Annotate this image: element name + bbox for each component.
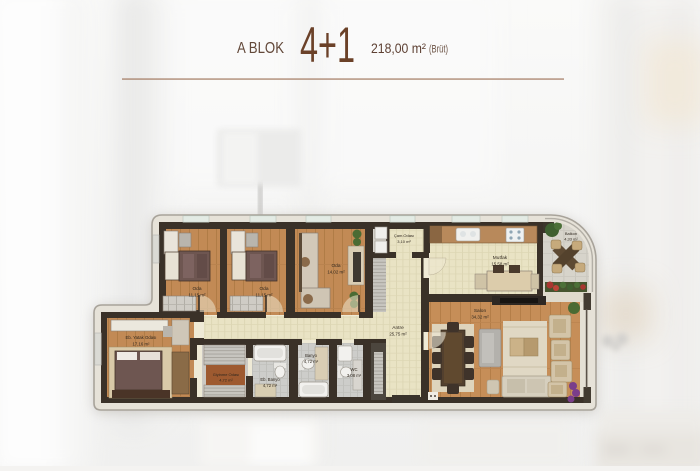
svg-text:4,72 m²: 4,72 m²	[304, 359, 319, 364]
svg-text:Antre: Antre	[392, 325, 404, 331]
svg-text:15,58 m²: 15,58 m²	[491, 262, 509, 267]
svg-text:Salon: Salon	[474, 308, 487, 314]
svg-text:Mutfak: Mutfak	[493, 255, 508, 261]
svg-text:17,16 m²: 17,16 m²	[133, 342, 151, 347]
svg-text:11,15 m²: 11,15 m²	[255, 293, 273, 298]
svg-text:Balkon: Balkon	[565, 231, 577, 236]
svg-text:34,32 m²: 34,32 m²	[471, 315, 489, 320]
svg-text:11,15 m²: 11,15 m²	[188, 293, 206, 298]
svg-text:Eb. Banyo: Eb. Banyo	[260, 377, 280, 382]
svg-text:Çam.Odası: Çam.Odası	[394, 233, 414, 238]
svg-text:WC: WC	[351, 367, 358, 372]
svg-text:4,72 m²: 4,72 m²	[263, 383, 278, 388]
svg-text:3,10 m²: 3,10 m²	[397, 239, 411, 244]
svg-text:Eb. Yatak Odası: Eb. Yatak Odası	[126, 335, 157, 340]
svg-text:Banyo: Banyo	[305, 353, 318, 358]
svg-text:(Brüt): (Brüt)	[429, 44, 448, 56]
svg-text:3,08 m²: 3,08 m²	[347, 373, 362, 378]
svg-text:Giyinme Odası: Giyinme Odası	[213, 372, 239, 377]
svg-text:Oda: Oda	[331, 263, 340, 269]
svg-text:218,00 m²: 218,00 m²	[371, 41, 426, 56]
svg-text:4,72 m²: 4,72 m²	[219, 378, 233, 383]
svg-text:A BLOK: A BLOK	[237, 40, 284, 57]
svg-text:Oda: Oda	[259, 286, 268, 292]
svg-text:4+1: 4+1	[300, 17, 355, 73]
svg-text:4,33 m²: 4,33 m²	[564, 237, 578, 242]
svg-text:Oda: Oda	[192, 286, 201, 292]
svg-text:25,75 m²: 25,75 m²	[389, 332, 407, 337]
svg-text:14,02 m²: 14,02 m²	[327, 270, 345, 275]
